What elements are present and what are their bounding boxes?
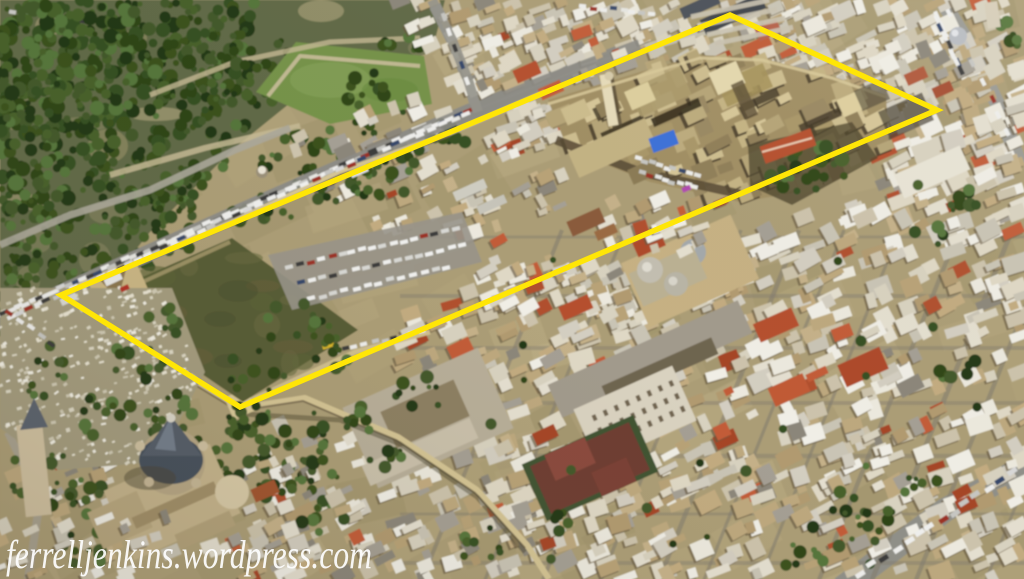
svg-text:ferrelljenkins.wordpress.com: ferrelljenkins.wordpress.com [6, 532, 372, 577]
